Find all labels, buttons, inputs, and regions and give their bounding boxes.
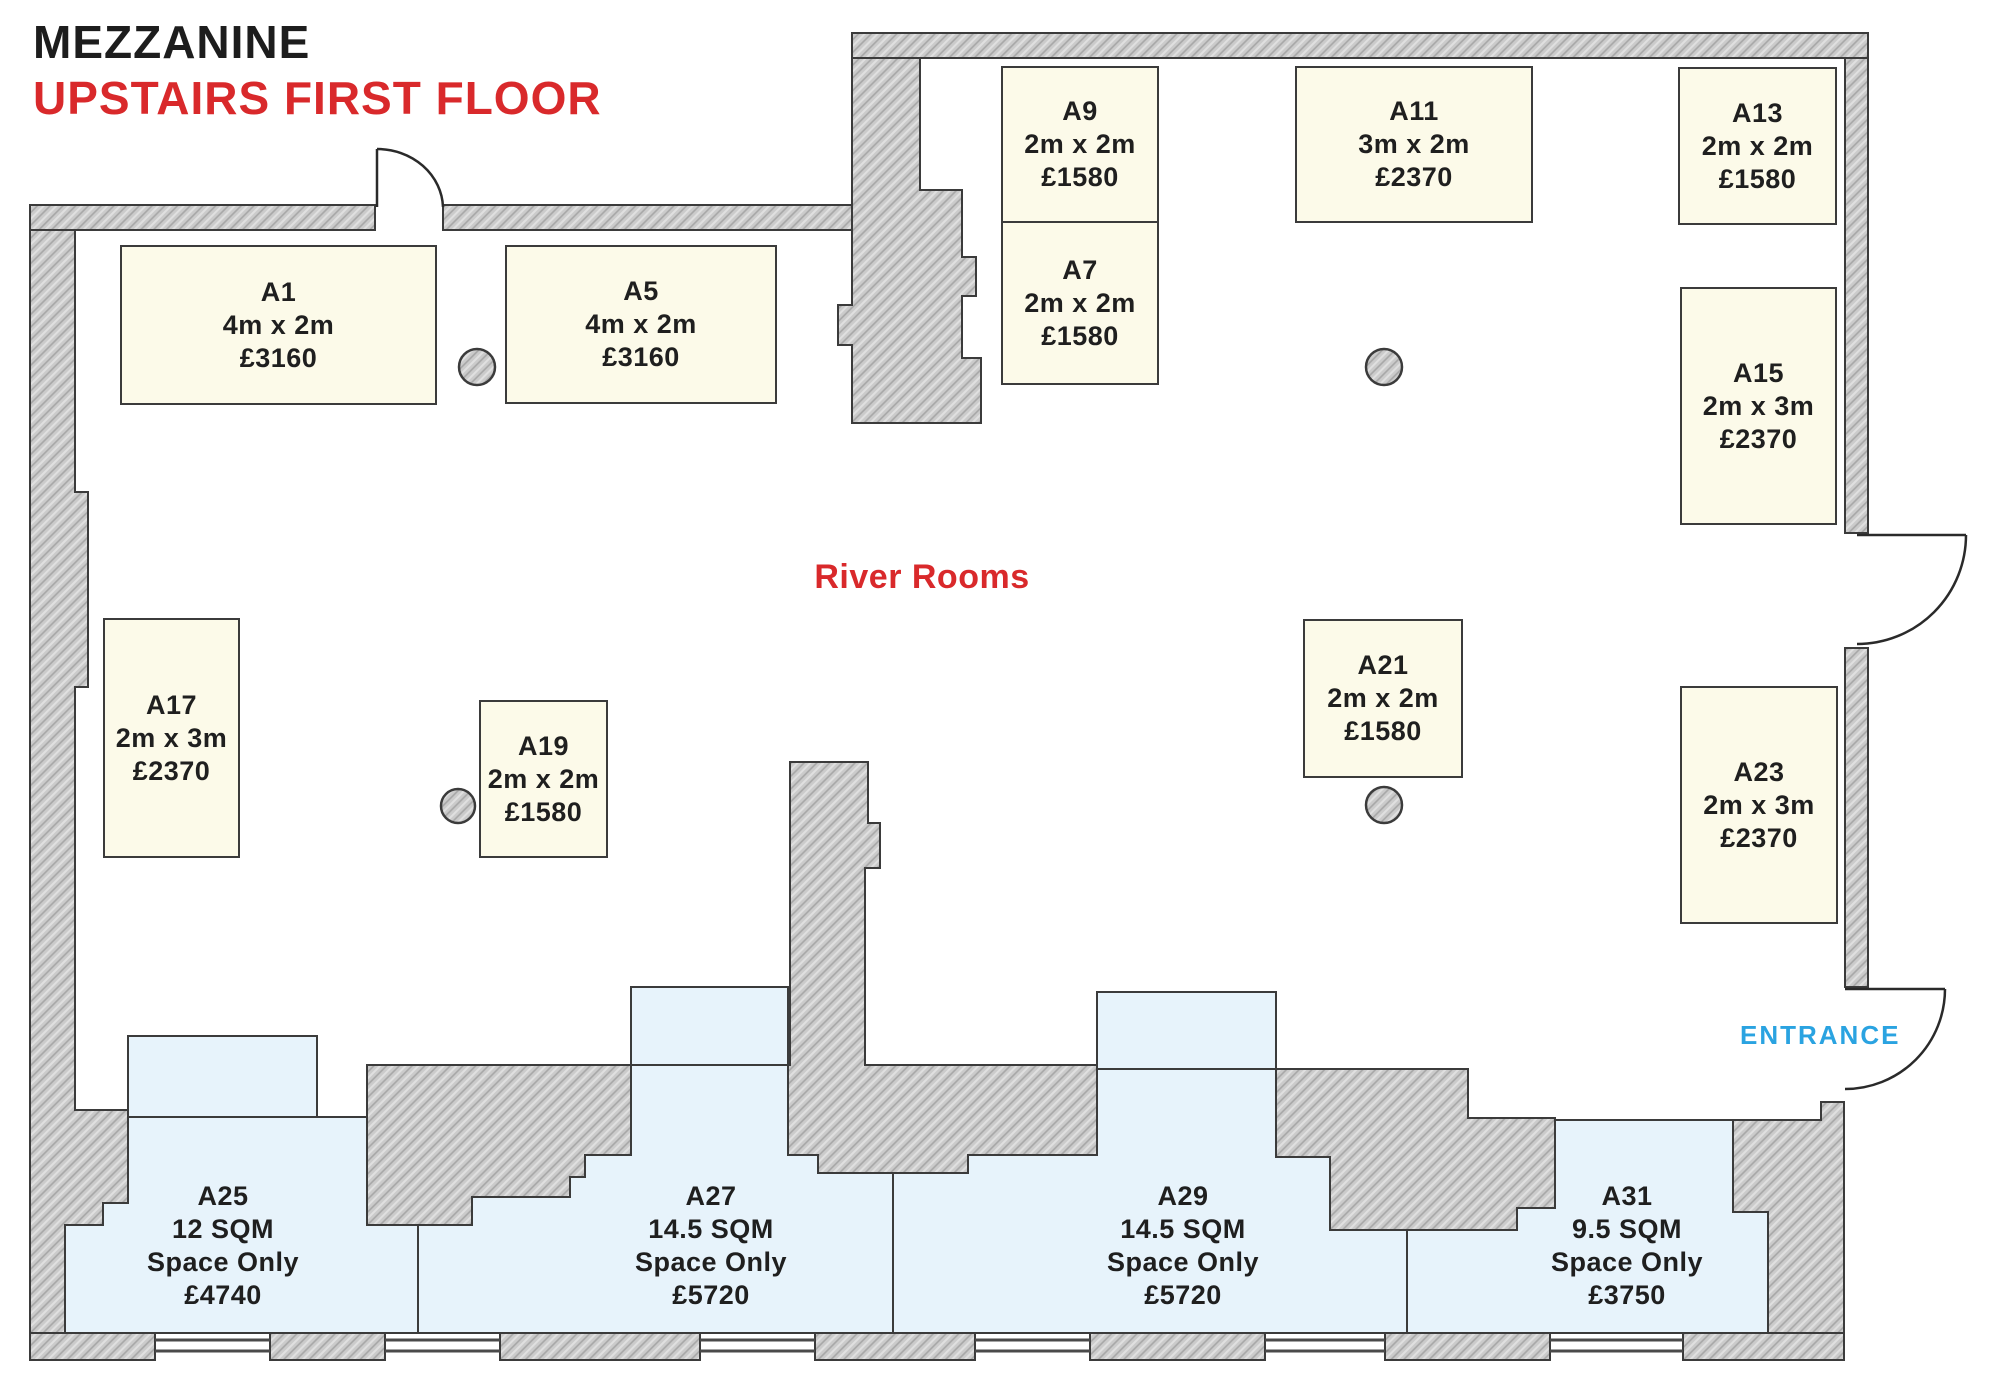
wall-right-upper	[1845, 58, 1868, 533]
stand-type: Space Only	[1107, 1246, 1259, 1279]
stand-price: £2370	[1720, 423, 1798, 456]
column	[459, 349, 495, 385]
stand-id: A21	[1357, 649, 1408, 682]
stand-a25-label: A25 12 SQM Space Only £4740	[147, 1180, 299, 1312]
column	[1366, 787, 1402, 823]
stand-id: A5	[623, 275, 659, 308]
wall-shaft-top	[838, 58, 981, 423]
stand-a15[interactable]: A15 2m x 3m £2370	[1680, 287, 1837, 525]
title-block: MEZZANINE UPSTAIRS FIRST FLOOR	[33, 14, 602, 126]
stand-id: A7	[1062, 254, 1098, 287]
stand-size: 14.5 SQM	[1107, 1213, 1259, 1246]
stand-a7[interactable]: A7 2m x 2m £1580	[1001, 221, 1159, 385]
wall-bottom-pier	[1090, 1333, 1265, 1360]
stand-size: 2m x 2m	[488, 763, 600, 796]
column	[1366, 349, 1402, 385]
area-label: River Rooms	[814, 558, 1029, 597]
wall-bottom-pier	[30, 1333, 155, 1360]
stand-id: A11	[1389, 95, 1439, 128]
stand-id: A9	[1062, 95, 1098, 128]
wall-bottom-pier	[1385, 1333, 1550, 1360]
stand-price: £3160	[240, 342, 318, 375]
stand-price: £1580	[1344, 715, 1422, 748]
window	[700, 1340, 815, 1351]
stand-price: £5720	[635, 1279, 787, 1312]
stand-id: A15	[1733, 357, 1784, 390]
stand-size: 4m x 2m	[585, 308, 697, 341]
stand-id: A17	[146, 689, 197, 722]
stand-price: £1580	[505, 796, 583, 829]
door-right-upper	[1857, 535, 1966, 644]
stand-a31-label: A31 9.5 SQM Space Only £3750	[1551, 1180, 1703, 1312]
stand-size: 12 SQM	[147, 1213, 299, 1246]
wall-bottom-pier	[270, 1333, 385, 1360]
stand-id: A29	[1107, 1180, 1259, 1213]
stand-size: 9.5 SQM	[1551, 1213, 1703, 1246]
wall-top-mid	[443, 205, 852, 230]
stand-price: £4740	[147, 1279, 299, 1312]
stand-a1[interactable]: A1 4m x 2m £3160	[120, 245, 437, 405]
stand-a21[interactable]: A21 2m x 2m £1580	[1303, 619, 1463, 778]
stand-price: £2370	[1375, 161, 1453, 194]
stand-price: £2370	[1720, 822, 1798, 855]
wall-bottom-pier	[500, 1333, 700, 1360]
stand-size: 2m x 2m	[1702, 130, 1814, 163]
stand-a9[interactable]: A9 2m x 2m £1580	[1001, 66, 1159, 223]
stand-price: £5720	[1107, 1279, 1259, 1312]
stand-price: £3160	[602, 341, 680, 374]
stand-type: Space Only	[1551, 1246, 1703, 1279]
stand-price: £1580	[1041, 320, 1119, 353]
stand-id: A31	[1551, 1180, 1703, 1213]
stand-price: £1580	[1719, 163, 1797, 196]
stand-a11[interactable]: A11 3m x 2m £2370	[1295, 66, 1533, 223]
window	[1265, 1340, 1385, 1351]
stand-a13[interactable]: A13 2m x 2m £1580	[1678, 67, 1837, 225]
stand-size: 14.5 SQM	[635, 1213, 787, 1246]
stand-id: A13	[1732, 97, 1783, 130]
wall-shaft-central	[788, 762, 1097, 1173]
wall-bottom-pier	[1683, 1333, 1844, 1360]
stand-a5[interactable]: A5 4m x 2m £3160	[505, 245, 777, 404]
stand-price: £3750	[1551, 1279, 1703, 1312]
page-subtitle: UPSTAIRS FIRST FLOOR	[33, 70, 602, 126]
stand-a23[interactable]: A23 2m x 3m £2370	[1680, 686, 1838, 924]
stand-a27-label: A27 14.5 SQM Space Only £5720	[635, 1180, 787, 1312]
wall-top-left	[30, 205, 375, 230]
page-title: MEZZANINE	[33, 14, 602, 70]
column	[441, 789, 475, 823]
stand-a29-label: A29 14.5 SQM Space Only £5720	[1107, 1180, 1259, 1312]
stand-a19[interactable]: A19 2m x 2m £1580	[479, 700, 608, 858]
stand-size: 2m x 2m	[1024, 287, 1136, 320]
window	[155, 1340, 270, 1351]
window	[975, 1340, 1090, 1351]
stand-a17[interactable]: A17 2m x 3m £2370	[103, 618, 240, 858]
stand-type: Space Only	[635, 1246, 787, 1279]
stand-size: 3m x 2m	[1358, 128, 1470, 161]
stand-size: 2m x 2m	[1024, 128, 1136, 161]
floor-plan: MEZZANINE UPSTAIRS FIRST FLOOR A1 4m x 2…	[0, 0, 2000, 1395]
window	[1550, 1340, 1683, 1351]
door-top-left	[377, 149, 443, 207]
stand-id: A1	[261, 276, 297, 309]
stand-size: 2m x 3m	[116, 722, 228, 755]
stand-price: £1580	[1041, 161, 1119, 194]
stand-size: 2m x 2m	[1327, 682, 1439, 715]
stand-price: £2370	[133, 755, 211, 788]
wall-top-right	[852, 33, 1868, 58]
stand-type: Space Only	[147, 1246, 299, 1279]
stand-size: 4m x 2m	[223, 309, 335, 342]
stand-size: 2m x 3m	[1703, 390, 1815, 423]
window	[385, 1340, 500, 1351]
stand-size: 2m x 3m	[1703, 789, 1815, 822]
stand-id: A27	[635, 1180, 787, 1213]
entrance-label: ENTRANCE	[1740, 1020, 1900, 1051]
stand-id: A25	[147, 1180, 299, 1213]
stand-id: A23	[1733, 756, 1784, 789]
wall-right-mid	[1845, 648, 1868, 987]
stand-id: A19	[518, 730, 569, 763]
wall-bottom-pier	[815, 1333, 975, 1360]
